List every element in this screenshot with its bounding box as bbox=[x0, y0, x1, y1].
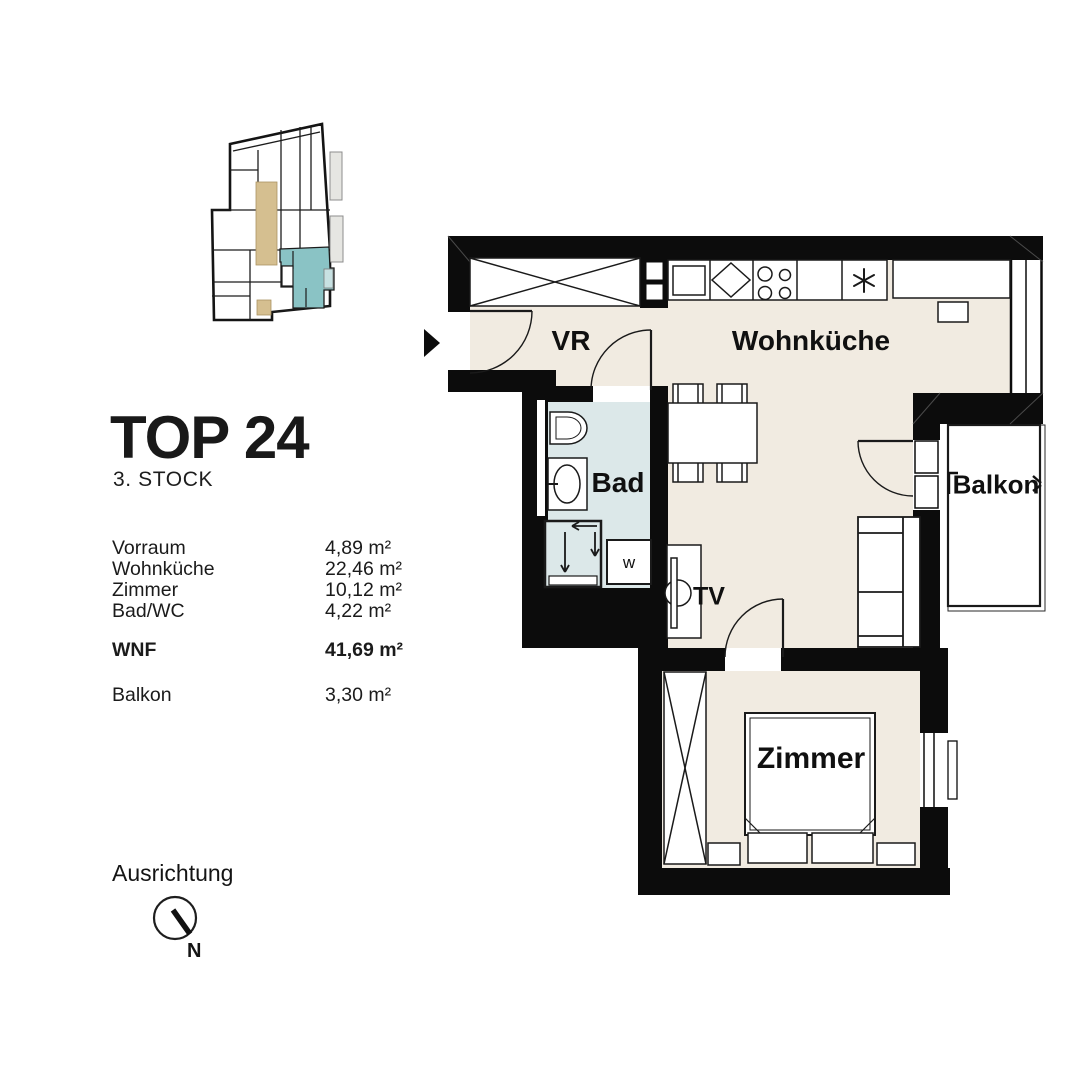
wall-segment bbox=[638, 645, 662, 895]
window-kitchen-east bbox=[1010, 260, 1043, 393]
unit-floor: 3. STOCK bbox=[113, 468, 213, 492]
door-sill-bedroom bbox=[725, 648, 781, 671]
shower bbox=[545, 521, 601, 587]
area-balcony-label: Balkon bbox=[112, 684, 172, 706]
dining-table bbox=[668, 403, 757, 463]
balcony-door-panel bbox=[915, 476, 938, 508]
niche bbox=[646, 262, 663, 280]
area-row: Bad/WC 4,22 m² bbox=[112, 601, 422, 622]
door-sill-bath bbox=[593, 386, 650, 402]
room-label-tv: TV bbox=[693, 583, 725, 612]
wardrobe-bedroom bbox=[664, 672, 706, 864]
nightstand bbox=[708, 843, 740, 865]
minimap-unit-balcony bbox=[324, 269, 333, 288]
compass-label: Ausrichtung bbox=[112, 860, 233, 887]
balcony-slab bbox=[948, 425, 1040, 606]
washer-label: w bbox=[623, 553, 635, 573]
minimap-corridor bbox=[256, 182, 277, 265]
minimap-balcony-strip bbox=[330, 152, 342, 200]
area-row: Zimmer 10,12 m² bbox=[112, 580, 422, 601]
sofa bbox=[858, 517, 920, 647]
wall-segment bbox=[448, 236, 470, 312]
area-row-label: Bad/WC bbox=[112, 600, 185, 622]
area-total-value: 41,69 m² bbox=[325, 640, 403, 661]
wall-segment bbox=[781, 648, 948, 671]
balcony-door-panel bbox=[915, 441, 938, 473]
room-label-zimmer: Zimmer bbox=[757, 742, 865, 776]
area-total-label: WNF bbox=[112, 639, 156, 661]
wall-segment bbox=[448, 236, 1043, 260]
pillow bbox=[748, 833, 807, 863]
tv-screen bbox=[671, 558, 677, 628]
area-row-label: Vorraum bbox=[112, 537, 186, 559]
chair bbox=[673, 462, 703, 482]
floorplan-sheet: { "unit": { "title": "TOP 24", "floor": … bbox=[0, 0, 1080, 1080]
chair bbox=[717, 384, 747, 404]
area-row-value: 10,12 m² bbox=[325, 580, 402, 601]
kitchen-counter-right bbox=[893, 260, 1010, 298]
shaft bbox=[537, 400, 545, 516]
chair bbox=[673, 384, 703, 404]
chair bbox=[717, 462, 747, 482]
area-row: Vorraum 4,89 m² bbox=[112, 538, 422, 559]
room-label-vorraum: VR bbox=[552, 325, 591, 357]
entrance-arrow-icon bbox=[424, 329, 440, 357]
area-row-label: Zimmer bbox=[112, 579, 178, 601]
wall-segment bbox=[662, 648, 725, 671]
minimap-corridor-stub bbox=[257, 300, 271, 315]
tv-speaker bbox=[665, 580, 691, 606]
area-balcony-value: 3,30 m² bbox=[325, 685, 391, 706]
area-row-label: Wohnküche bbox=[112, 558, 215, 580]
wall-segment bbox=[650, 398, 668, 615]
room-label-wohnkueche: Wohnküche bbox=[732, 325, 890, 357]
wardrobe-vr bbox=[470, 258, 640, 306]
room-label-bad: Bad bbox=[592, 467, 645, 499]
area-row-value: 22,46 m² bbox=[325, 559, 402, 580]
balcony bbox=[948, 425, 1045, 611]
area-total-row: WNF 41,69 m² bbox=[112, 640, 422, 661]
area-row-value: 4,89 m² bbox=[325, 538, 391, 559]
compass-graphic bbox=[154, 897, 196, 939]
nightstand bbox=[877, 843, 915, 865]
wall-segment bbox=[913, 393, 1043, 424]
kitchen-counter bbox=[668, 260, 887, 300]
oven bbox=[673, 266, 705, 295]
room-label-balkon: Balkon bbox=[953, 470, 1040, 501]
window-bedroom bbox=[920, 733, 957, 807]
unit-title: TOP 24 bbox=[110, 408, 309, 468]
area-balcony-row: Balkon 3,30 m² bbox=[112, 685, 422, 706]
minimap bbox=[212, 124, 343, 320]
wall-segment bbox=[522, 588, 668, 648]
minimap-unit-shaft bbox=[282, 266, 293, 286]
kitchen-box bbox=[938, 302, 968, 322]
compass-north-label: N bbox=[187, 940, 201, 963]
pillow bbox=[812, 833, 873, 863]
area-row-value: 4,22 m² bbox=[325, 601, 391, 622]
wall-segment bbox=[638, 868, 950, 895]
compass-needle bbox=[173, 910, 190, 934]
minimap-balcony-strip bbox=[330, 216, 343, 262]
area-row: Wohnküche 22,46 m² bbox=[112, 559, 422, 580]
niche bbox=[646, 284, 663, 300]
